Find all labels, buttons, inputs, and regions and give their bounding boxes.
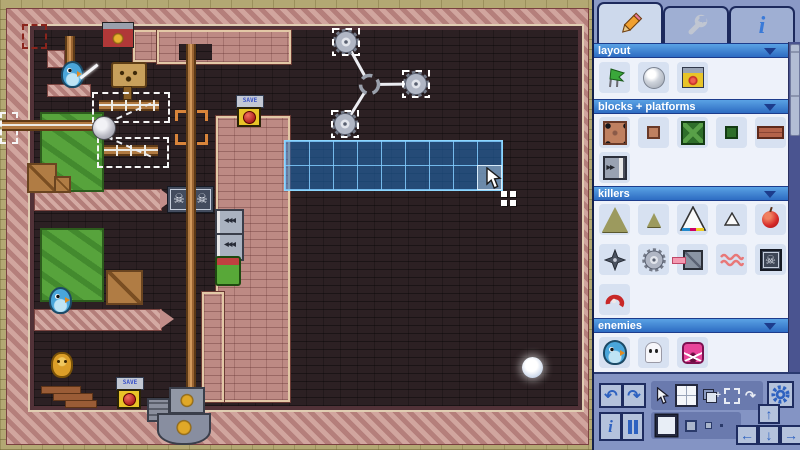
screen-boundary-marker [22, 24, 47, 49]
item-spike-small[interactable] [638, 204, 669, 235]
skull-block-icon: ☠ [760, 249, 782, 271]
crate-small[interactable] [54, 176, 71, 193]
item-save-button[interactable] [677, 62, 708, 93]
wrench-icon [684, 14, 708, 38]
small-brick-block[interactable] [47, 50, 65, 68]
section-title: layout [598, 45, 630, 57]
tab-edit[interactable] [597, 2, 663, 44]
info-icon: i [608, 417, 613, 437]
nudge-left-button[interactable]: ← [736, 425, 758, 445]
laser-block-icon [683, 250, 703, 270]
rotating-saw-assembly[interactable] [328, 23, 442, 141]
crate-large[interactable] [27, 163, 57, 193]
item-bird[interactable] [599, 337, 630, 368]
item-spike-outline-small[interactable] [716, 204, 747, 235]
pause-bar [634, 420, 638, 434]
glowing-white-ball[interactable] [522, 357, 543, 378]
collapse-triangle-icon[interactable] [764, 191, 776, 198]
wooden-face-sign[interactable] [111, 62, 147, 88]
saw-blade-icon [642, 248, 666, 272]
item-flag[interactable] [599, 62, 630, 93]
machine-body[interactable] [169, 387, 205, 414]
size-small[interactable] [705, 422, 712, 429]
save-button-upper[interactable] [237, 107, 261, 127]
target-bracket [175, 110, 208, 145]
collapse-triangle-icon[interactable] [764, 48, 776, 55]
section-title: enemies [598, 320, 642, 332]
item-conveyor[interactable]: ▶▶ [599, 152, 630, 183]
item-bubble[interactable] [638, 62, 669, 93]
saw-blade-3 [332, 111, 358, 137]
marquee-select-tool[interactable] [724, 388, 740, 404]
item-green-block-small[interactable] [716, 117, 747, 148]
panel-scrollbar-thumb[interactable] [790, 44, 800, 136]
item-spike-large[interactable] [599, 204, 630, 235]
cursor-tool-icon[interactable] [656, 387, 670, 405]
section-body-killers: ☠ [594, 201, 788, 318]
bird-enemy-2[interactable] [49, 287, 72, 314]
gold-creature[interactable] [51, 352, 73, 378]
tab-tools[interactable] [663, 6, 729, 44]
crate-room2[interactable] [106, 270, 143, 305]
tool-group: + ↷ [651, 381, 763, 410]
nudge-right-button[interactable]: → [780, 425, 800, 445]
green-block-small-icon [725, 126, 738, 139]
banner-dispenser[interactable] [102, 22, 134, 48]
save-button-lower[interactable] [117, 389, 141, 409]
collapse-triangle-icon[interactable] [764, 323, 776, 330]
conveyor-icon: ▶▶ [603, 156, 627, 180]
item-ghost[interactable] [638, 337, 669, 368]
spike-large-icon [602, 207, 628, 232]
save-point-icon [682, 67, 704, 88]
item-green-block-large[interactable] [677, 117, 708, 148]
pause-bar [628, 420, 632, 434]
item-brick-platform[interactable] [755, 117, 786, 148]
green-block-large-icon [681, 121, 705, 145]
plus-icon: + [715, 390, 721, 401]
wall-column-foot[interactable] [202, 292, 224, 402]
spike-small-icon [647, 213, 661, 227]
item-saw-blade[interactable] [638, 244, 669, 275]
pause-toggle-button[interactable] [621, 412, 644, 441]
rotate-tool-icon[interactable]: ↷ [745, 388, 756, 404]
section-body-blocks: ▶▶ [594, 114, 788, 186]
green-barrel[interactable] [215, 256, 241, 286]
red-swirl-icon [604, 291, 626, 309]
item-spike-outline-large[interactable] [677, 204, 708, 235]
bird-icon [603, 340, 627, 365]
brick-step-3[interactable] [65, 400, 97, 408]
item-star[interactable] [599, 244, 630, 275]
section-body-layout [594, 58, 788, 99]
block-small-icon [647, 126, 660, 139]
item-block-small[interactable] [638, 117, 669, 148]
acid-pool-lower[interactable] [40, 228, 104, 302]
ball-joint[interactable] [92, 116, 116, 140]
nudge-down-button[interactable]: ↓ [758, 425, 780, 445]
section-header-blocks[interactable]: blocks + platforms [594, 99, 788, 114]
size-large-selected[interactable] [656, 415, 677, 436]
spike-outline-large-icon [679, 206, 707, 233]
apple-icon [762, 211, 779, 228]
item-red-swirl[interactable] [599, 284, 630, 315]
pink-angry-block-icon [682, 342, 704, 364]
block-large-icon [603, 121, 627, 145]
redo-button[interactable]: ↷ [622, 383, 646, 408]
platform-bar-2-tip [160, 309, 174, 329]
squiggle-icon [720, 253, 744, 267]
item-apple[interactable] [755, 204, 786, 235]
machine-dome[interactable] [157, 413, 211, 445]
level-canvas[interactable]: ☠ ☠ ◀◀◀ ◀◀◀ SAVE [0, 0, 592, 450]
section-header-layout[interactable]: layout [594, 43, 788, 58]
section-title: blocks + platforms [598, 101, 696, 113]
mouse-cursor [485, 167, 503, 190]
collapse-triangle-icon[interactable] [764, 104, 776, 111]
undo-button[interactable]: ↶ [599, 383, 623, 408]
section-header-enemies[interactable]: enemies [594, 318, 788, 333]
horizontal-rail[interactable] [2, 120, 96, 131]
grid-draw-tool-active[interactable] [675, 384, 698, 407]
section-header-killers[interactable]: killers [594, 186, 788, 201]
spike-outline-small-icon [724, 212, 740, 227]
app-window: ☠ ☠ ◀◀◀ ◀◀◀ SAVE [0, 0, 800, 450]
grid-mode-icon [501, 191, 516, 206]
item-squiggle[interactable] [716, 244, 747, 275]
item-pink-block[interactable] [677, 337, 708, 368]
ghost-icon [645, 342, 662, 363]
section-title: killers [598, 188, 630, 200]
saw-blade-2 [403, 71, 429, 97]
gear-icon [770, 384, 791, 405]
size-tiny[interactable] [720, 424, 723, 427]
nudge-up-button[interactable]: ↑ [758, 404, 780, 424]
stamp-copy-tool[interactable]: + [703, 389, 719, 403]
item-laser-block[interactable] [677, 244, 708, 275]
shuriken-icon [604, 249, 626, 271]
bubble-icon [643, 67, 665, 89]
saw-blade-1 [333, 29, 359, 55]
brush-size-group [651, 412, 741, 439]
section-body-enemies [594, 333, 788, 372]
item-block-large[interactable] [599, 117, 630, 148]
tab-info[interactable]: i [729, 6, 795, 44]
info-icon: i [759, 13, 766, 40]
flag-icon [604, 66, 626, 90]
item-skull-block[interactable]: ☠ [755, 244, 786, 275]
wall-top-band[interactable] [157, 30, 291, 64]
info-toggle-button[interactable]: i [599, 412, 622, 441]
editor-panel: i layout blocks + platforms [592, 0, 800, 450]
size-medium[interactable] [685, 420, 697, 432]
vertical-pole[interactable] [186, 44, 196, 397]
tile-selection-grid[interactable] [284, 140, 503, 191]
pencil-icon [617, 11, 643, 37]
brick-platform-icon [757, 126, 784, 139]
